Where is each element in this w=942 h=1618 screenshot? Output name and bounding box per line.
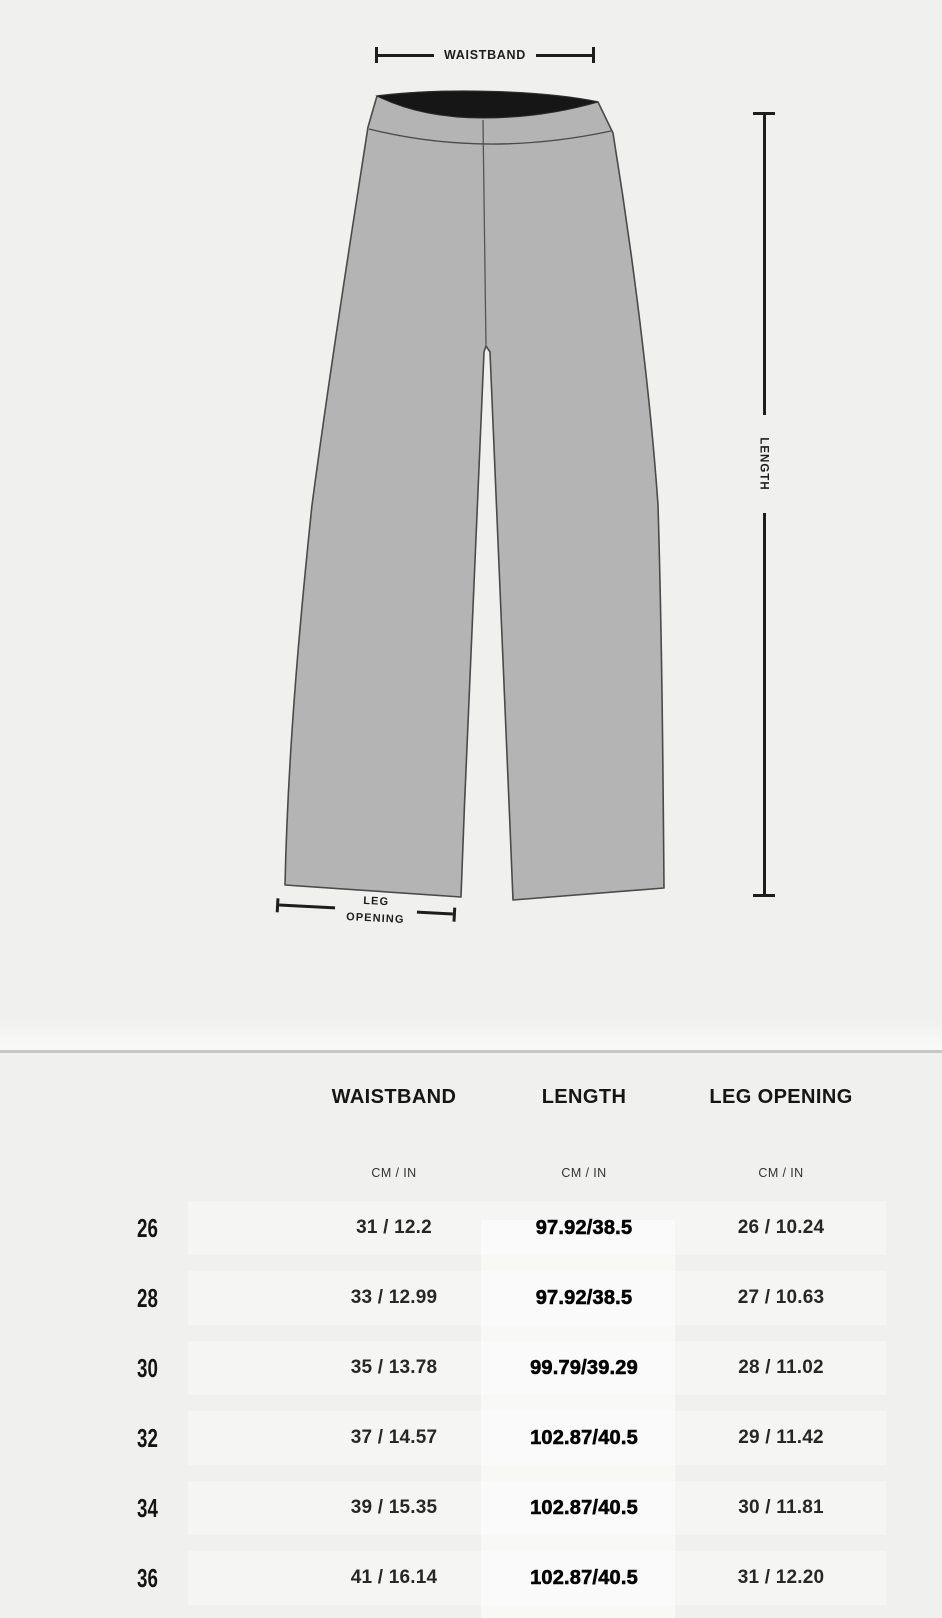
size-cell: 36 xyxy=(137,1563,158,1594)
size-table-section: WAISTBAND LENGTH LEG OPENING CM / IN CM … xyxy=(0,1081,942,1618)
size-table-row: 28 33 / 12.99 97.92/38.5 27 / 10.63 xyxy=(0,1263,942,1333)
dimension-line xyxy=(536,54,592,57)
dimension-line xyxy=(763,115,766,415)
leg-opening-cell: 28 / 11.02 xyxy=(674,1357,888,1379)
pants-illustration xyxy=(0,0,942,1050)
dimension-line xyxy=(279,903,335,909)
size-table-header: WAISTBAND LENGTH LEG OPENING xyxy=(0,1081,942,1113)
size-cell: 26 xyxy=(137,1213,158,1244)
leg-opening-cell: 29 / 11.42 xyxy=(674,1427,888,1449)
length-dimension-label: LENGTH xyxy=(758,438,770,491)
length-cell: 97.92/38.5 xyxy=(494,1287,674,1310)
dimension-tick-bottom xyxy=(753,894,775,897)
waistband-dimension: WAISTBAND xyxy=(375,47,595,63)
dimension-line xyxy=(417,911,453,916)
length-cell: 102.87/40.5 xyxy=(494,1567,674,1590)
leg-opening-unit-label: CM / IN xyxy=(674,1166,888,1180)
waistband-cell: 31 / 12.2 xyxy=(294,1217,494,1239)
leg-opening-cell: 27 / 10.63 xyxy=(674,1287,888,1309)
length-cell: 97.92/38.5 xyxy=(494,1217,674,1240)
size-table-row: 32 37 / 14.57 102.87/40.5 29 / 11.42 xyxy=(0,1403,942,1473)
length-cell: 102.87/40.5 xyxy=(494,1427,674,1450)
waistband-cell: 37 / 14.57 xyxy=(294,1427,494,1449)
size-table-row: 30 35 / 13.78 99.79/39.29 28 / 11.02 xyxy=(0,1333,942,1403)
size-cell: 28 xyxy=(137,1283,158,1314)
size-table-row: 36 41 / 16.14 102.87/40.5 31 / 12.20 xyxy=(0,1543,942,1613)
leg-opening-dimension-label: LEG OPENING xyxy=(346,892,406,928)
size-cell: 32 xyxy=(137,1423,158,1454)
pants-body xyxy=(285,91,664,900)
size-table-body: 26 31 / 12.2 97.92/38.5 26 / 10.24 28 33… xyxy=(0,1193,942,1613)
dimension-line xyxy=(763,513,766,894)
length-dimension: LENGTH xyxy=(753,112,775,897)
length-cell: 99.79/39.29 xyxy=(494,1357,674,1380)
waistband-cell: 41 / 16.14 xyxy=(294,1567,494,1589)
waistband-cell: 35 / 13.78 xyxy=(294,1357,494,1379)
waistband-cell: 39 / 15.35 xyxy=(294,1497,494,1519)
size-guide-page: WAISTBAND LENGTH LEG OPENING xyxy=(0,0,942,1618)
size-table-row: 26 31 / 12.2 97.92/38.5 26 / 10.24 xyxy=(0,1193,942,1263)
waistband-column-header: WAISTBAND xyxy=(294,1086,494,1109)
size-cell: 34 xyxy=(137,1493,158,1524)
dimension-tick-right xyxy=(592,47,595,63)
leg-opening-cell: 30 / 11.81 xyxy=(674,1497,888,1519)
size-table-row: 34 39 / 15.35 102.87/40.5 30 / 11.81 xyxy=(0,1473,942,1543)
length-cell: 102.87/40.5 xyxy=(494,1497,674,1520)
length-unit-label: CM / IN xyxy=(494,1166,674,1180)
leg-opening-column-header: LEG OPENING xyxy=(674,1086,888,1109)
leg-opening-cell: 31 / 12.20 xyxy=(674,1567,888,1589)
waistband-unit-label: CM / IN xyxy=(294,1166,494,1180)
pants-measurement-diagram: WAISTBAND LENGTH LEG OPENING xyxy=(0,0,942,1053)
size-cell: 30 xyxy=(137,1353,158,1384)
length-column-header: LENGTH xyxy=(494,1086,674,1109)
leg-opening-cell: 26 / 10.24 xyxy=(674,1217,888,1239)
waistband-cell: 33 / 12.99 xyxy=(294,1287,494,1309)
size-table-units-row: CM / IN CM / IN CM / IN xyxy=(0,1165,942,1181)
dimension-line xyxy=(378,54,434,57)
waistband-dimension-label: WAISTBAND xyxy=(444,48,526,62)
